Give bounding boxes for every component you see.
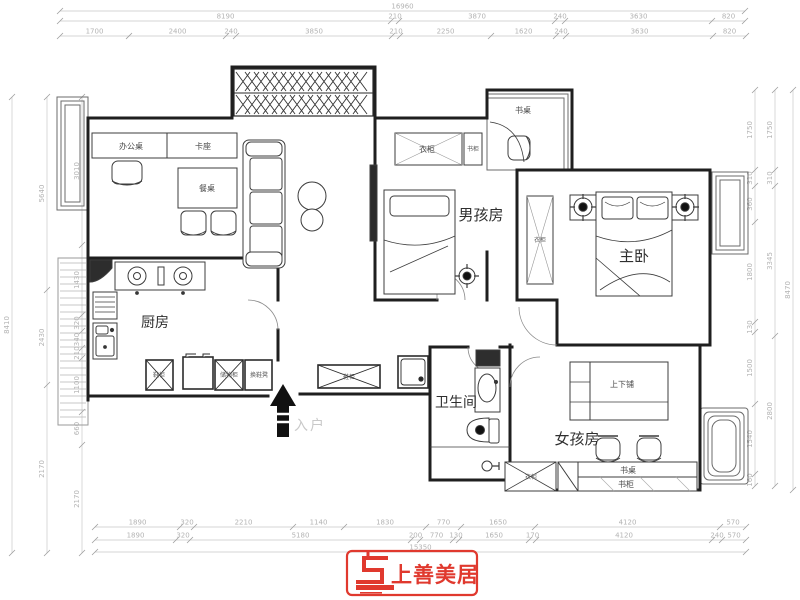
dimension-label: 320 — [176, 532, 189, 540]
dimension-label: 1500 — [746, 359, 754, 377]
dimension-label: 16960 — [391, 3, 413, 11]
dimension-label: 2210 — [235, 519, 253, 527]
dimension-label: 1620 — [515, 28, 533, 36]
bath-cabinet — [476, 350, 500, 366]
toilet — [467, 418, 499, 443]
dimension-label: 240 — [710, 532, 723, 540]
label-girl-wardrobe: 衣柜 — [525, 473, 537, 481]
label-storage-cabinet: 储物柜 — [220, 371, 238, 379]
room-label-bathroom: 卫生间 — [435, 395, 477, 411]
dimension-label: 2170 — [73, 490, 81, 508]
room-label-kitchen: 厨房 — [141, 315, 169, 331]
dimension-label: 320 — [73, 316, 81, 329]
shower-icon — [482, 461, 499, 471]
dimension-label: 200 — [409, 532, 422, 540]
dimension-label: 310 — [766, 171, 774, 184]
dimension-label: 3345 — [766, 252, 774, 270]
dimension-label: 1830 — [376, 519, 394, 527]
labels-layer: 厨房 男孩房 主卧 卫生间 女孩房 入户 办公桌 卡座 餐桌 书桌 衣柜 书柜 … — [119, 105, 649, 489]
bottom-right-balcony-window — [700, 408, 748, 484]
dimension-label: 5640 — [38, 185, 46, 203]
label-girl-desk: 书桌 — [620, 465, 636, 475]
dimension-label: 4120 — [615, 532, 633, 540]
dimension-label: 3630 — [631, 28, 649, 36]
hall-appliance — [183, 357, 213, 389]
dimension-label: 1800 — [746, 263, 754, 281]
dimension-label: 8410 — [3, 316, 11, 334]
dimension-label: 2400 — [169, 28, 187, 36]
bunk-bed — [570, 362, 668, 420]
girl-door-arc — [510, 357, 540, 387]
label-balcony-desk: 书桌 — [515, 105, 531, 115]
living-dining — [92, 133, 377, 268]
logo-text: 上善美居 — [391, 563, 479, 587]
floor-plan-canvas: 1696081902103870240363082017002400240385… — [0, 0, 800, 600]
label-bunk-bed: 上下铺 — [610, 379, 634, 389]
label-shoe-bench: 换鞋凳 — [250, 371, 268, 379]
office-desk — [92, 133, 237, 158]
dimension-label: 570 — [726, 519, 739, 527]
dimension-label: 820 — [722, 13, 735, 21]
logo-monogram-icon — [356, 552, 388, 582]
dimension-label: 1750 — [746, 121, 754, 139]
dimension-label: 5180 — [292, 532, 310, 540]
office-chair — [112, 161, 142, 184]
dimension-label: 130 — [746, 320, 754, 333]
dimension-label: 240 — [553, 13, 566, 21]
entry-arrow — [270, 384, 296, 437]
dimension-label: 770 — [430, 532, 443, 540]
corner-unit — [558, 462, 578, 491]
dimension-label: 2800 — [766, 402, 774, 420]
dimension-label: 3870 — [468, 13, 486, 21]
girl-desk — [578, 462, 697, 477]
dimension-label: 1750 — [766, 121, 774, 139]
boy-bed — [384, 190, 455, 294]
nightstand — [672, 194, 699, 221]
dimension-label: 8190 — [217, 13, 235, 21]
desk-chair — [508, 136, 530, 160]
dimension-label: 210 — [388, 13, 401, 21]
ceiling-lamp-icon — [455, 264, 479, 288]
left-balcony-window — [57, 97, 88, 210]
master-bed — [596, 192, 672, 296]
room-label-boy: 男孩房 — [458, 206, 503, 224]
dimension-label: 1890 — [129, 519, 147, 527]
label-dining-table: 餐桌 — [199, 183, 215, 193]
dimension-label: 8470 — [784, 281, 792, 299]
dimension-label: 320 — [180, 519, 193, 527]
nightstand — [570, 194, 597, 221]
label-office-desk: 办公桌 — [119, 141, 143, 151]
dimension-label: 360 — [746, 197, 754, 210]
dimension-label: 1540 — [746, 430, 754, 448]
dimension-label: 2170 — [38, 460, 46, 478]
label-booth: 卡座 — [195, 141, 211, 151]
room-label-master: 主卧 — [619, 247, 649, 265]
label-master-wardrobe: 衣柜 — [534, 236, 546, 244]
floor-plan: 1696081902103870240363082017002400240385… — [0, 0, 800, 600]
dimension-label: 1700 — [86, 28, 104, 36]
dimension-label: 210 — [73, 346, 81, 359]
dimension-label: 160 — [746, 473, 754, 486]
dimension-label: 2250 — [437, 28, 455, 36]
round-table — [298, 182, 326, 210]
dimension-label: 3850 — [305, 28, 323, 36]
label-hall-shoe-cabinet: 鞋柜 — [343, 373, 355, 381]
master-door-arc — [519, 307, 557, 345]
dimension-label: 660 — [73, 422, 81, 435]
master-balcony-window — [712, 172, 748, 254]
dimension-label: 1650 — [485, 532, 503, 540]
entry-cabinets — [146, 354, 428, 390]
round-table — [301, 209, 323, 231]
label-boy-wardrobe: 衣柜 — [419, 144, 435, 154]
kitchen-fixtures — [90, 260, 205, 359]
dining-chair — [211, 211, 236, 235]
dimension-label: 1100 — [73, 376, 81, 394]
kitchen-door-arc — [248, 300, 278, 330]
girl-bookcase — [578, 477, 697, 491]
dimension-label: 240 — [554, 28, 567, 36]
kitchen-rack — [93, 292, 117, 319]
dining-chair — [181, 211, 206, 235]
dimension-label: 820 — [723, 28, 736, 36]
dimension-label: 210 — [389, 28, 402, 36]
label-entry-shoe-cabinet: 鞋柜 — [153, 371, 165, 379]
corner-cabinet — [90, 260, 112, 282]
dimension-label: 570 — [727, 532, 740, 540]
dimension-label: 1890 — [127, 532, 145, 540]
stool — [637, 438, 661, 460]
sofa — [243, 140, 285, 268]
boy-room — [384, 122, 530, 294]
dimension-label: 1430 — [73, 271, 81, 289]
dimension-label: 310 — [746, 171, 754, 184]
stool — [596, 438, 620, 460]
entry-label: 入户 — [294, 417, 326, 434]
dimension-label: 4120 — [619, 519, 637, 527]
dimension-label: 2430 — [38, 329, 46, 347]
dimension-label: 3630 — [630, 13, 648, 21]
hatched-balcony — [234, 69, 373, 116]
dimension-label: 770 — [437, 519, 450, 527]
dimension-label: 1650 — [489, 519, 507, 527]
master-room — [527, 192, 699, 296]
dimension-label: 240 — [224, 28, 237, 36]
label-girl-bookcase: 书柜 — [618, 479, 634, 489]
girl-room — [505, 362, 697, 491]
tv-panel — [370, 165, 377, 241]
dimension-label: 1140 — [310, 519, 328, 527]
label-boy-bookcase: 书柜 — [467, 145, 479, 153]
top-right-balcony-window — [487, 90, 572, 170]
brand-logo: 上善美居 — [347, 551, 479, 595]
dimension-label: 340 — [73, 333, 81, 346]
room-label-girl: 女孩房 — [554, 430, 599, 448]
